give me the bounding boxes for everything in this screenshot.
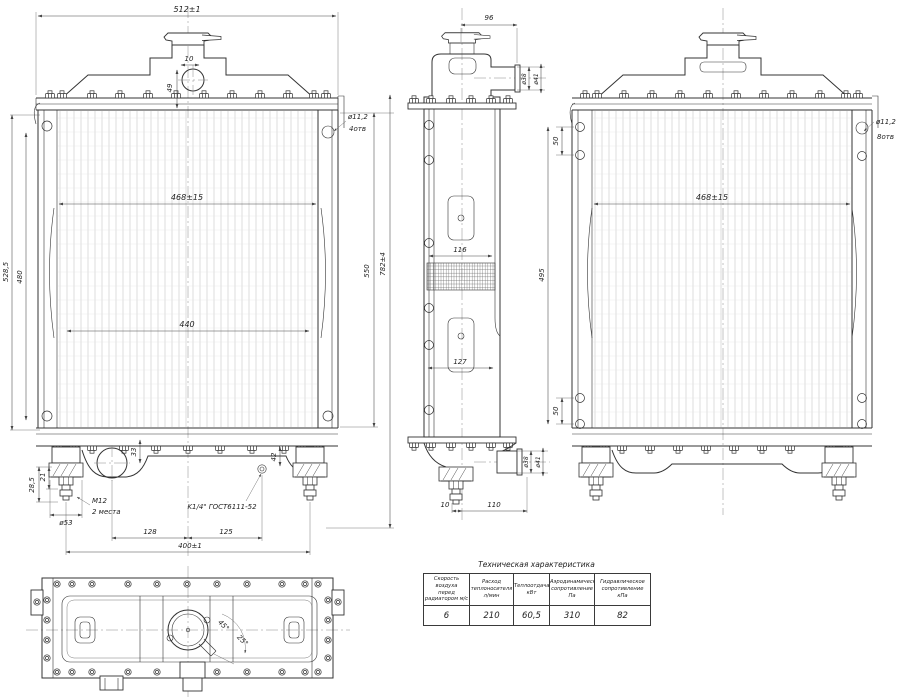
dim-rear-core-width: 468±15 [696,193,728,202]
value-flow: 210 [470,606,514,626]
dim-span-mounts: 400±1 [178,542,202,550]
front-channel-holes [42,121,333,421]
value-hydro: 82 [595,606,651,626]
overflow-tube [199,639,216,656]
dim-height-right: 550 [363,264,371,278]
note-thread: M12 [92,497,107,505]
dim-neck-height: 49 [166,83,174,92]
dim-pipe-bottom-outer: ø41 [535,456,542,468]
side-view: 96 ø38 ø41 116 127 ø38 ø41 10 110 [408,8,550,520]
dim-mount-a: 28,5 [28,477,36,493]
front-core-fins [60,111,312,427]
rear-core-rows [593,118,851,412]
note-rear-holes-dia: ø11,2 [875,118,896,126]
dim-top-width: 96 [485,14,494,22]
col-header-flow: Расходтеплоносителял/мин [470,574,514,606]
dim-height-outer-left: 528,5 [2,261,10,282]
rear-top-bolts [581,91,863,98]
side-core-hatch-v [428,263,493,290]
dim-height-inner-left: 480 [16,270,24,284]
dim-pipe-top-inner: ø38 [521,73,528,85]
table-title: Техническая характеристика [423,560,650,569]
note-thread-places: 2 места [92,508,120,516]
dim-hole-pitch-top: 50 [552,136,560,145]
dim-span-right: 125 [219,528,233,536]
top-view: 45° 25° [26,566,350,697]
dim-height-overall: 782±4 [379,252,387,276]
note-holes-dia: ø11,2 [347,113,368,121]
dim-angle-b: 25° [235,633,249,647]
col-header-heat: ТеплоотдачакВт [514,574,550,606]
topview-dimensions: 45° 25° [214,614,250,664]
dim-core-depth-top: 116 [453,246,467,254]
rear-core-fins [595,111,847,427]
dim-angle-a: 45° [216,618,230,632]
technical-table: Техническая характеристика Скорость возд… [423,560,650,626]
rear-view: 50 495 50 468±15 ø11,2 8отв [538,8,896,515]
dim-mount-b: 21 [39,473,47,482]
side-core-hatch-h [427,266,495,288]
dim-width-top: 512±1 [173,5,200,14]
dim-pipe-offset: 110 [487,501,501,509]
dim-pipe-bottom-inner: ø38 [523,456,530,468]
value-aero: 310 [550,606,595,626]
dim-pipe-top-outer: ø41 [533,73,540,85]
note-rear-holes-count: 8отв [877,133,894,141]
dim-core-width: 468±15 [171,193,203,202]
dim-mount-dia: ø53 [58,519,72,527]
characteristics-table: Скорость воздухапередрадиатором м/с Расх… [423,573,651,626]
value-heat: 60,5 [514,606,550,626]
note-holes-count: 4отв [349,125,366,133]
topview-bolts-right [325,597,331,661]
dim-stud-offset: 10 [441,501,450,509]
rear-bottom-bolts [618,446,795,453]
front-core-rows [58,118,317,412]
dim-hole-span: 495 [538,268,546,282]
col-header-aero: АэродинамическоесопротивлениеПа [550,574,595,606]
col-header-air-speed: Скорость воздухапередрадиатором м/с [424,574,470,606]
col-header-hydro: ГидравлическоесопротивлениекПа [595,574,651,606]
dim-span-left: 128 [143,528,157,536]
dim-tap-offset: 42 [270,452,278,461]
note-tap-thread: K1/4" ГОСТ6111-52 [187,503,257,511]
dim-core-width-inner: 440 [179,320,194,329]
dim-neck-offset: 10 [185,55,194,63]
dim-core-depth-bottom: 127 [453,358,467,366]
dim-hole-pitch-bottom: 50 [552,406,560,415]
topview-bolts-top [54,581,321,587]
front-view: 512±1 10 49 ø11,2 4отв 468±15 440 528,5 … [2,5,394,556]
value-air-speed: 6 [424,606,470,626]
dim-drain-offset: 33 [130,448,138,457]
drawing-sheet: { "drawing": { "front_view": { "dims": {… [0,0,900,699]
